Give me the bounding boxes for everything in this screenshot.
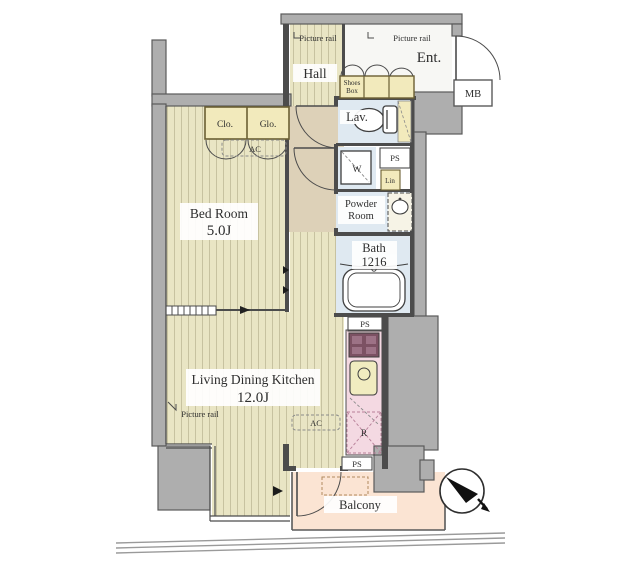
bath-label: Bath [362,241,386,255]
ps-top-label: PS [390,153,400,163]
hall-label: Hall [303,66,326,81]
kitchen-sink [350,361,377,395]
bathtub [340,264,408,311]
balcony-label: Balcony [339,498,381,512]
bedroom-label: Bed Room [190,206,249,221]
bedroom-size-label: 5.0J [207,223,232,239]
picture-rail-ent-label: Picture rail [393,33,431,43]
ps-mid-label: PS [360,319,370,329]
picture-rail-ldk-label: Picture rail [181,409,219,419]
closet-left-label: Clo. [217,120,233,130]
corridor-south-floor [290,232,344,316]
picture-rail-hall-label: Picture rail [299,33,337,43]
meter-box-label: MB [465,89,481,100]
pipe-shaft-hatch [398,101,411,142]
refrigerator-label: R [361,429,368,439]
washer-label: W [353,165,362,175]
ps-bottom-label: PS [352,459,362,469]
floor-plan-drawing: Picture rail Picture rail Hall Ent. Shoe… [0,0,640,569]
powder-room-label-1: Powder [345,199,378,210]
ac-ldk-label: AC [310,418,322,428]
linen-label: Lin [385,177,395,185]
closet-right-label: Glo. [260,120,277,130]
ac-bedroom-label: AC [249,144,261,154]
shoes-box-label-1: Shoes [344,79,361,87]
floor-plan: Picture rail Picture rail Hall Ent. Shoe… [0,0,640,569]
ldk-size-label: 12.0J [237,390,269,406]
lavatory-label: Lav. [346,110,368,124]
bath-size-label: 1216 [362,255,387,269]
shoes-box-label-2: Box [346,87,358,95]
powder-room-label-2: Room [348,211,374,222]
ldk-label: Living Dining Kitchen [192,372,315,387]
entrance-label: Ent. [417,50,442,66]
washbasin [388,193,412,231]
